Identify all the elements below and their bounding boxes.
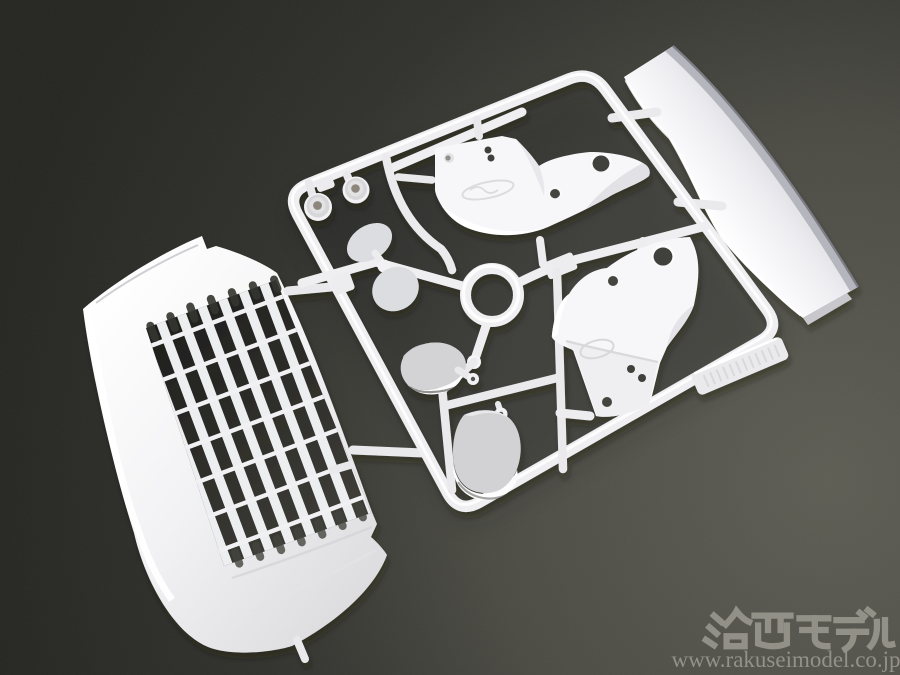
svg-text:www.rakuseimodel.co.jp: www.rakuseimodel.co.jp <box>671 647 900 672</box>
